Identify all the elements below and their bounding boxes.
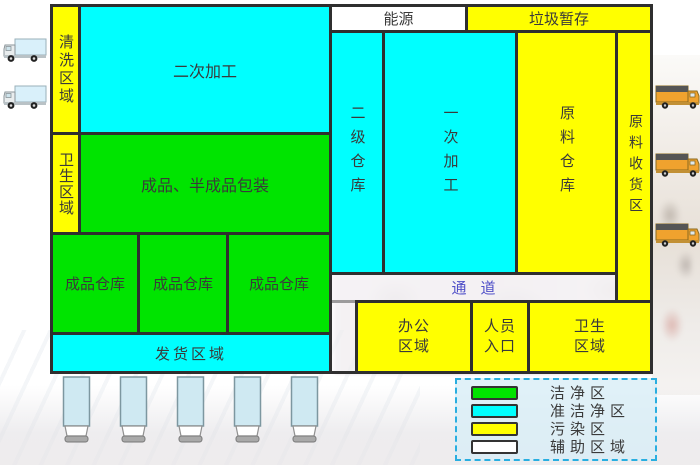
layout-border-notch (329, 300, 358, 374)
zone-label: 卫生区域 (55, 152, 76, 216)
zone-raw-warehouse: 原料仓库 (515, 30, 618, 275)
legend-label: 辅助区域 (550, 436, 630, 457)
slide-canvas: 清洗区域 二次加工 能源 垃圾暂存 卫生区域 成品、半成品包装 二级仓库 一次加… (0, 0, 700, 465)
zone-label: 能源 (383, 8, 413, 29)
polluted-zone-swatch-icon (471, 422, 518, 436)
zone-raw-receiving: 原料收货区 (615, 30, 653, 303)
zone-label: 办公区域 (396, 317, 432, 358)
zone-finished-warehouse-2: 成品仓库 (137, 232, 229, 335)
box-truck-left-icon (3, 37, 47, 64)
legend-item-clean: 洁净区 (471, 384, 655, 401)
zone-secondary-warehouse: 二级仓库 (329, 30, 385, 275)
zone-label: 清洗区域 (55, 34, 76, 106)
box-truck-left-icon (3, 84, 47, 111)
zone-finished-warehouse-1: 成品仓库 (50, 232, 140, 335)
zone-primary-processing: 一次加工 (382, 30, 518, 275)
zone-energy: 能源 (329, 4, 468, 33)
loading-dock-icon (290, 376, 319, 444)
legend-item-auxiliary: 辅助区域 (471, 438, 655, 455)
loading-dock-icon (62, 376, 91, 444)
zone-label: 原料仓库 (556, 105, 577, 201)
zone-label: 卫生区域 (572, 317, 608, 358)
zone-cleaning-area: 清洗区域 (50, 4, 81, 135)
legend-item-quasi-clean: 准洁净区 (471, 402, 655, 419)
zone-finished-warehouse-3: 成品仓库 (226, 232, 332, 335)
zone-hygiene-bottom: 卫生区域 (527, 300, 653, 374)
zone-label: 通道 (437, 277, 509, 298)
zone-secondary-processing: 二次加工 (78, 4, 332, 135)
zone-label: 成品仓库 (153, 273, 213, 294)
zone-shipping-area: 发货区域 (50, 332, 332, 374)
zone-label: 发货区域 (155, 343, 227, 364)
box-truck-right-icon (655, 221, 700, 249)
zone-waste-storage: 垃圾暂存 (465, 4, 653, 33)
zone-packaging: 成品、半成品包装 (78, 132, 332, 235)
clean-zone-swatch-icon (471, 386, 518, 400)
box-truck-right-icon (655, 151, 700, 179)
zone-label: 垃圾暂存 (529, 8, 589, 29)
zone-label: 成品仓库 (65, 273, 125, 294)
quasi-clean-zone-swatch-icon (471, 404, 518, 418)
box-truck-right-icon (655, 83, 700, 111)
zone-label: 一次加工 (440, 105, 461, 201)
legend-item-polluted: 污染区 (471, 420, 655, 437)
zone-office-area: 办公区域 (355, 300, 473, 374)
loading-dock-icon (119, 376, 148, 444)
zone-label: 成品、半成品包装 (141, 172, 269, 196)
loading-dock-icon (233, 376, 262, 444)
zone-staff-entrance: 人员入口 (470, 300, 530, 374)
zone-label: 二次加工 (173, 58, 237, 82)
zone-label: 原料收货区 (624, 114, 644, 219)
zone-corridor: 通道 (329, 272, 618, 303)
loading-dock-icon (176, 376, 205, 444)
zone-label: 成品仓库 (249, 273, 309, 294)
zone-label: 人员入口 (482, 317, 518, 358)
zone-legend: 洁净区 准洁净区 污染区 辅助区域 (455, 378, 657, 461)
zone-hygiene-left: 卫生区域 (50, 132, 81, 235)
auxiliary-zone-swatch-icon (471, 440, 518, 454)
zone-label: 二级仓库 (347, 105, 368, 201)
